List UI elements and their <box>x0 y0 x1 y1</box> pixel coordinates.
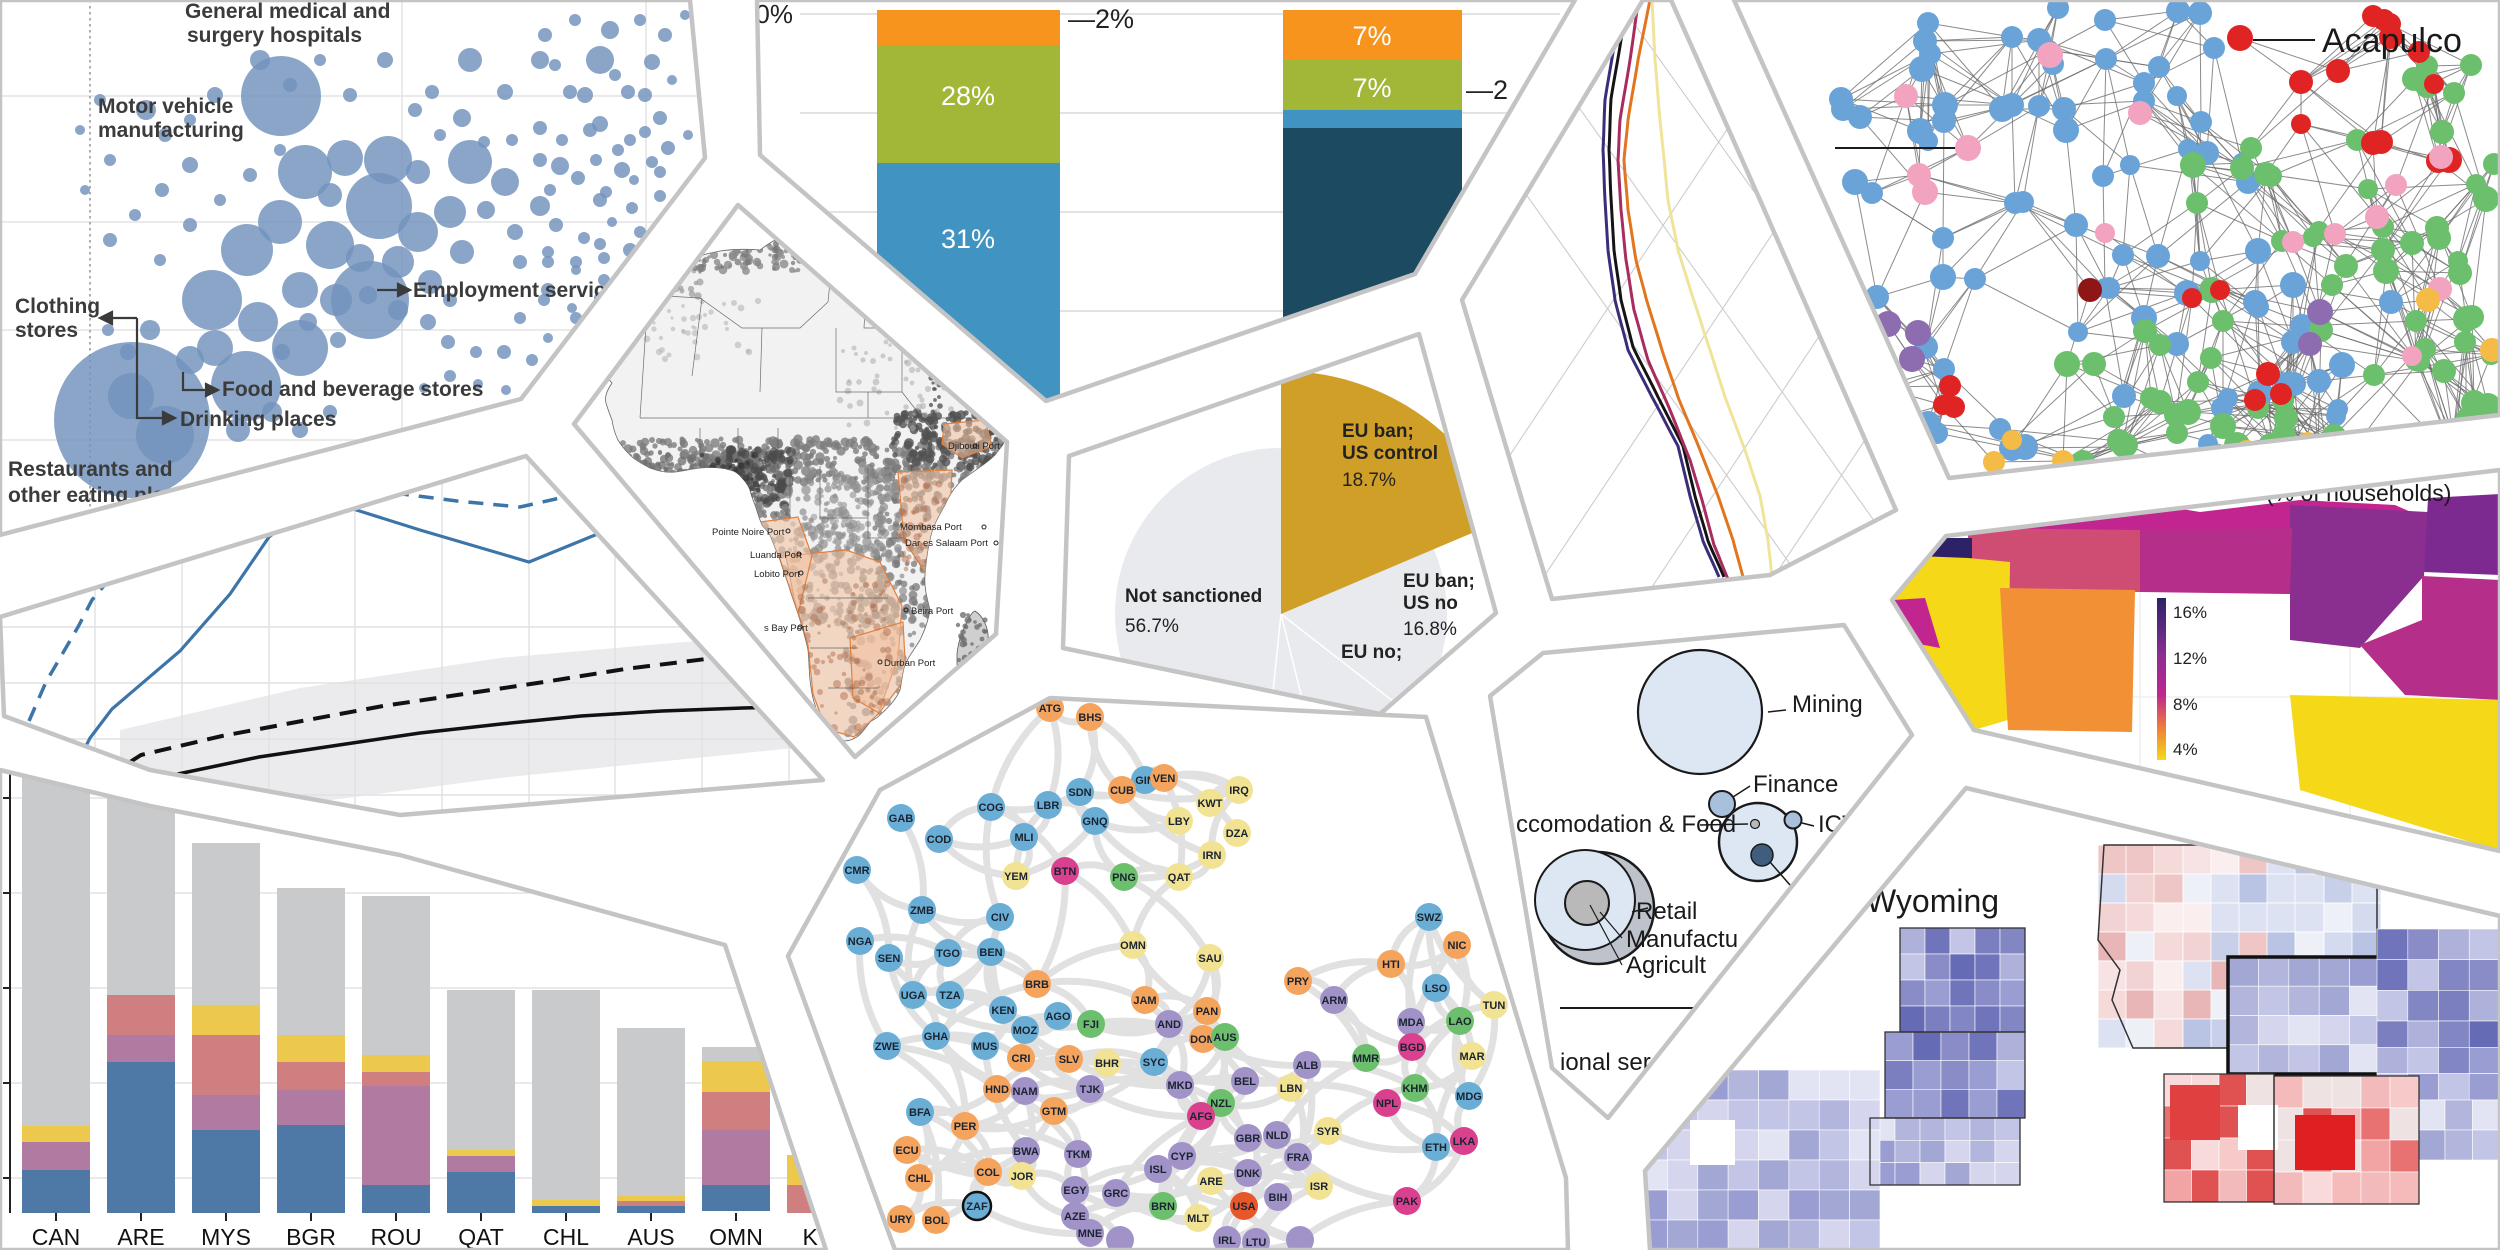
svg-text:HTI: HTI <box>1382 959 1400 971</box>
svg-text:ISL: ISL <box>1149 1164 1166 1176</box>
svg-text:COG: COG <box>978 802 1003 814</box>
svg-text:GTM: GTM <box>1042 1106 1066 1118</box>
svg-text:TKM: TKM <box>1066 1149 1090 1161</box>
svg-text:BHR: BHR <box>1095 1058 1119 1070</box>
svg-text:TJK: TJK <box>1080 1084 1101 1096</box>
svg-text:VEN: VEN <box>1153 773 1176 785</box>
svg-text:Djibouti Port: Djibouti Port <box>948 441 1000 452</box>
svg-text:GAB: GAB <box>889 813 914 825</box>
svg-text:FRA: FRA <box>1287 1152 1310 1164</box>
svg-text:16.8%: 16.8% <box>1403 619 1457 640</box>
svg-text:surgery hospitals: surgery hospitals <box>187 24 362 47</box>
svg-text:Luanda Port: Luanda Port <box>750 550 802 561</box>
svg-text:BEL: BEL <box>1234 1076 1256 1088</box>
svg-text:OMN: OMN <box>1120 940 1146 952</box>
svg-text:AUS: AUS <box>627 1224 674 1250</box>
svg-text:GNQ: GNQ <box>1082 816 1108 828</box>
svg-text:28%: 28% <box>941 81 995 111</box>
svg-text:AGO: AGO <box>1045 1011 1071 1023</box>
svg-text:NLD: NLD <box>1266 1130 1289 1142</box>
svg-text:BGD: BGD <box>1400 1042 1425 1054</box>
svg-text:SDN: SDN <box>1068 787 1091 799</box>
svg-text:US control: US control <box>1342 443 1438 464</box>
svg-text:Employment service: Employment service <box>413 279 617 302</box>
svg-text:—2: —2 <box>1466 75 1508 105</box>
svg-text:BTN: BTN <box>1054 866 1077 878</box>
svg-text:GRC: GRC <box>1104 1188 1129 1200</box>
svg-text:TGO: TGO <box>936 948 960 960</box>
svg-text:LBN: LBN <box>1280 1083 1303 1095</box>
svg-text:7%: 7% <box>1352 21 1391 51</box>
svg-text:AUS: AUS <box>1213 1032 1236 1044</box>
svg-text:JAM: JAM <box>1133 995 1156 1007</box>
svg-text:12%: 12% <box>2173 649 2207 668</box>
svg-text:BHS: BHS <box>1078 712 1101 724</box>
svg-text:MMR: MMR <box>1353 1053 1379 1065</box>
svg-text:BRB: BRB <box>1025 979 1049 991</box>
svg-text:QAT: QAT <box>1168 872 1191 884</box>
svg-text:16%: 16% <box>2173 603 2207 622</box>
svg-text:EU no;: EU no; <box>1341 642 1402 663</box>
svg-text:TUN: TUN <box>1483 1000 1506 1012</box>
svg-text:CYP: CYP <box>1171 1151 1194 1163</box>
svg-text:EGY: EGY <box>1063 1185 1087 1197</box>
svg-text:QAT: QAT <box>458 1224 504 1250</box>
svg-text:EU ban;: EU ban; <box>1403 571 1475 592</box>
svg-text:MDG: MDG <box>1456 1091 1482 1103</box>
svg-text:Food and beverage stores: Food and beverage stores <box>222 378 483 401</box>
svg-text:PER: PER <box>954 1121 977 1133</box>
svg-text:IRL: IRL <box>1218 1235 1236 1247</box>
svg-text:AFG: AFG <box>1189 1111 1212 1123</box>
svg-text:SWZ: SWZ <box>1417 912 1442 924</box>
svg-text:LBY: LBY <box>1168 816 1191 828</box>
svg-text:DZA: DZA <box>1226 828 1249 840</box>
svg-text:PAN: PAN <box>1196 1006 1218 1018</box>
svg-text:LKA: LKA <box>1453 1136 1476 1148</box>
svg-text:USA: USA <box>1232 1201 1255 1213</box>
svg-text:ROU: ROU <box>370 1224 421 1250</box>
svg-text:Lobito Port: Lobito Port <box>754 569 800 580</box>
svg-text:CMR: CMR <box>844 865 869 877</box>
svg-text:CIV: CIV <box>991 912 1010 924</box>
svg-text:Restaurants and: Restaurants and <box>8 458 173 481</box>
svg-text:MUS: MUS <box>973 1041 997 1053</box>
svg-text:7%: 7% <box>1352 73 1391 103</box>
svg-text:BIH: BIH <box>1269 1192 1288 1204</box>
svg-text:SYC: SYC <box>1143 1057 1166 1069</box>
svg-text:ZWE: ZWE <box>875 1041 899 1053</box>
svg-text:CRI: CRI <box>1012 1053 1031 1065</box>
svg-text:JOR: JOR <box>1011 1171 1034 1183</box>
svg-text:AND: AND <box>1157 1019 1181 1031</box>
svg-text:Acapulco: Acapulco <box>2322 22 2462 60</box>
svg-text:SEN: SEN <box>878 953 901 965</box>
svg-text:LTU: LTU <box>1246 1237 1267 1249</box>
svg-text:Mining: Mining <box>1792 691 1863 718</box>
svg-text:MAR: MAR <box>1459 1051 1484 1063</box>
svg-text:GHA: GHA <box>924 1031 949 1043</box>
svg-text:SLV: SLV <box>1059 1054 1080 1066</box>
svg-text:UGA: UGA <box>901 990 926 1002</box>
svg-text:BGR: BGR <box>286 1224 336 1250</box>
svg-text:ARE: ARE <box>117 1224 164 1250</box>
svg-text:YEM: YEM <box>1004 871 1028 883</box>
svg-text:MKD: MKD <box>1167 1080 1192 1092</box>
svg-text:OMN: OMN <box>709 1224 763 1250</box>
svg-text:Motor vehicle: Motor vehicle <box>98 95 233 118</box>
svg-text:Clothing: Clothing <box>15 295 100 318</box>
svg-text:56.7%: 56.7% <box>1125 616 1179 637</box>
svg-text:KHM: KHM <box>1402 1083 1427 1095</box>
svg-text:MDA: MDA <box>1398 1017 1423 1029</box>
svg-text:COL: COL <box>976 1167 1000 1179</box>
svg-text:Wyoming: Wyoming <box>1866 883 1999 919</box>
svg-text:—2%: —2% <box>1068 4 1134 34</box>
svg-text:EU ban;: EU ban; <box>1342 421 1414 442</box>
svg-text:NIC: NIC <box>1448 940 1467 952</box>
svg-text:PNG: PNG <box>1112 872 1136 884</box>
svg-text:COD: COD <box>927 834 952 846</box>
svg-text:GBR: GBR <box>1236 1133 1261 1145</box>
svg-text:CHL: CHL <box>908 1173 931 1185</box>
svg-text:Not sanctioned: Not sanctioned <box>1125 586 1262 607</box>
svg-text:KWT: KWT <box>1197 798 1222 810</box>
svg-text:DNK: DNK <box>1236 1168 1260 1180</box>
svg-text:HND: HND <box>985 1084 1009 1096</box>
svg-text:4%: 4% <box>2173 740 2198 759</box>
svg-text:KEN: KEN <box>991 1005 1014 1017</box>
svg-text:MOZ: MOZ <box>1013 1025 1038 1037</box>
svg-text:LBR: LBR <box>1037 800 1060 812</box>
svg-text:PRY: PRY <box>1287 976 1310 988</box>
svg-text:ISR: ISR <box>1310 1181 1328 1193</box>
svg-text:Agricult: Agricult <box>1626 952 1706 979</box>
svg-text:8%: 8% <box>2173 695 2198 714</box>
svg-text:stores: stores <box>15 319 78 342</box>
svg-text:ARM: ARM <box>1321 995 1346 1007</box>
svg-text:CUB: CUB <box>1110 785 1134 797</box>
svg-text:Pointe Noire Port: Pointe Noire Port <box>712 527 785 538</box>
svg-text:BFA: BFA <box>909 1107 931 1119</box>
svg-text:ECU: ECU <box>895 1145 918 1157</box>
svg-text:Finance: Finance <box>1753 771 1838 798</box>
svg-text:18.7%: 18.7% <box>1342 470 1396 491</box>
svg-text:LAO: LAO <box>1448 1016 1472 1028</box>
svg-text:SAU: SAU <box>1198 953 1221 965</box>
svg-text:Manufactu: Manufactu <box>1626 926 1738 953</box>
svg-text:LSO: LSO <box>1425 983 1448 995</box>
svg-text:TZA: TZA <box>939 990 960 1002</box>
svg-text:ZMB: ZMB <box>910 905 934 917</box>
svg-text:CHL: CHL <box>543 1224 589 1250</box>
svg-text:Dar es Salaam Port: Dar es Salaam Port <box>905 538 988 549</box>
svg-text:NZL: NZL <box>1210 1098 1232 1110</box>
svg-text:General medical and: General medical and <box>185 0 390 23</box>
svg-text:Durban Port: Durban Port <box>884 658 936 669</box>
svg-text:IRQ: IRQ <box>1229 785 1249 797</box>
svg-text:NPL: NPL <box>1376 1098 1398 1110</box>
svg-text:BRN: BRN <box>1151 1201 1175 1213</box>
svg-text:31%: 31% <box>941 224 995 254</box>
svg-text:FJI: FJI <box>1083 1019 1099 1031</box>
svg-text:BOL: BOL <box>924 1215 948 1227</box>
svg-text:URY: URY <box>890 1214 913 1226</box>
svg-text:ETH: ETH <box>1425 1142 1447 1154</box>
svg-text:CAN: CAN <box>32 1224 81 1250</box>
svg-text:NGA: NGA <box>848 936 873 948</box>
svg-text:ALB: ALB <box>1296 1060 1319 1072</box>
svg-text:US no: US no <box>1403 593 1458 614</box>
svg-text:PAK: PAK <box>1396 1196 1418 1208</box>
svg-text:MLT: MLT <box>1187 1213 1209 1225</box>
svg-text:MYS: MYS <box>201 1224 251 1250</box>
svg-text:ional ser: ional ser <box>1560 1049 1651 1076</box>
svg-text:ARE: ARE <box>1199 1176 1222 1188</box>
svg-text:manufacturing: manufacturing <box>98 119 244 142</box>
svg-text:IRN: IRN <box>1203 850 1222 862</box>
svg-text:ZAF: ZAF <box>966 1201 988 1213</box>
svg-text:BEN: BEN <box>979 947 1002 959</box>
svg-text:Mombasa Port: Mombasa Port <box>900 522 962 533</box>
svg-text:0%: 0% <box>755 0 793 29</box>
svg-text:MNE: MNE <box>1078 1228 1102 1240</box>
svg-text:BWA: BWA <box>1013 1146 1039 1158</box>
svg-text:MLI: MLI <box>1015 832 1034 844</box>
svg-text:Retail: Retail <box>1636 898 1697 925</box>
svg-text:Drinking places: Drinking places <box>180 408 336 431</box>
svg-text:Beira Port: Beira Port <box>911 606 954 617</box>
svg-text:NAM: NAM <box>1012 1086 1037 1098</box>
svg-text:SYR: SYR <box>1317 1126 1340 1138</box>
